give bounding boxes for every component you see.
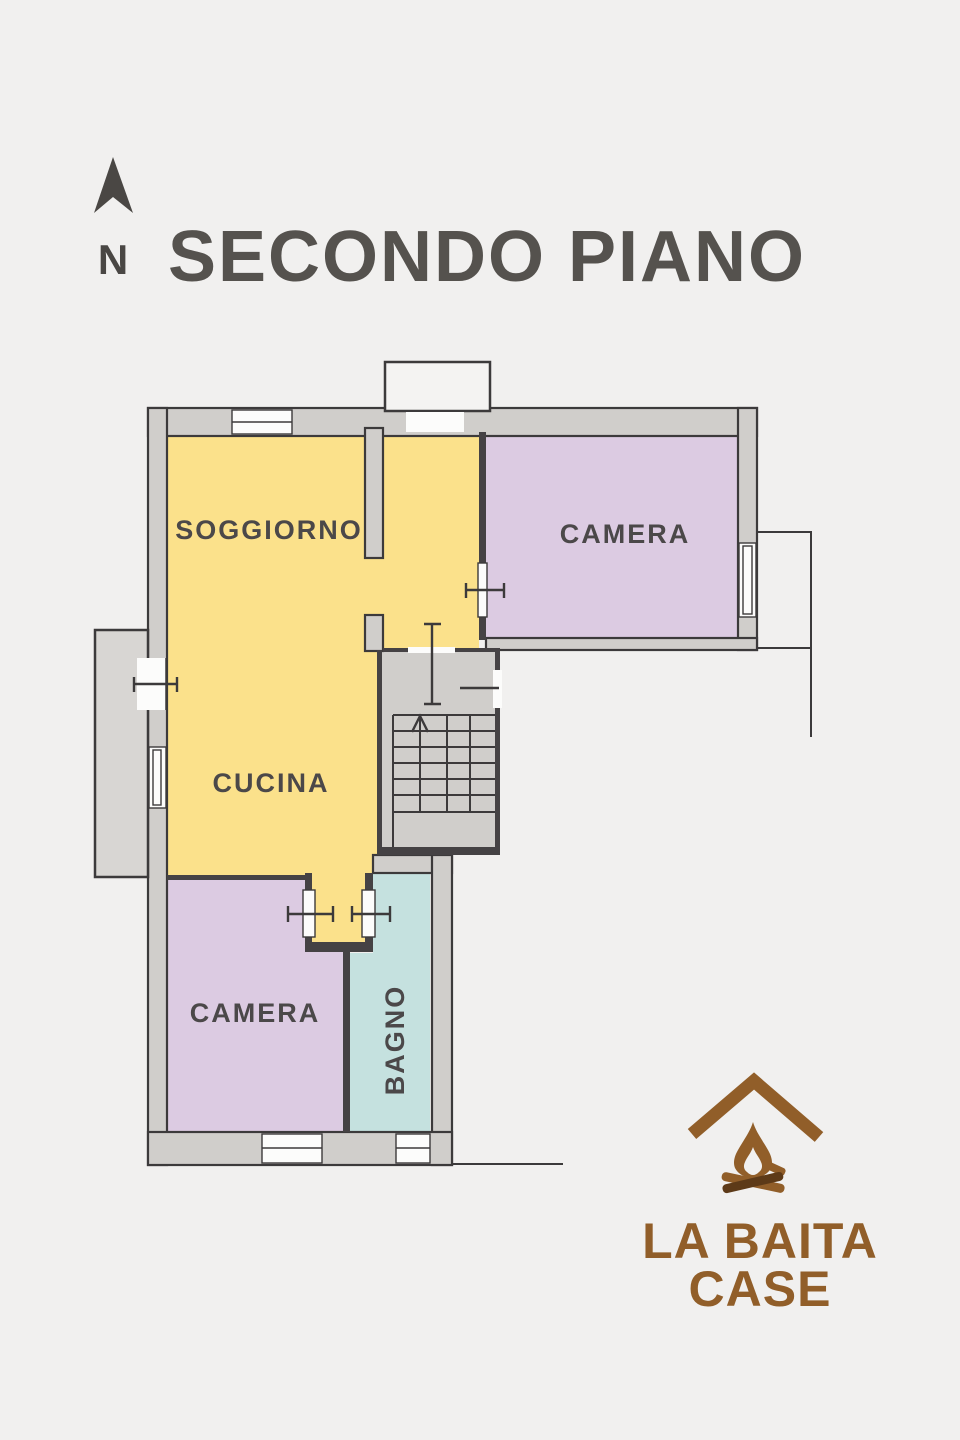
door-balcony-top <box>406 412 464 432</box>
window-right <box>739 543 756 617</box>
wall-partition-stub-2 <box>365 615 383 651</box>
wall-landing-right-a <box>495 650 500 670</box>
north-label: N <box>98 236 128 283</box>
room-fill-corridor <box>383 432 479 650</box>
north-arrow-icon <box>94 157 133 213</box>
wall-passage-bottom <box>305 942 373 952</box>
balcony-right-outline <box>757 532 811 648</box>
room-label-cucina: CUCINA <box>213 768 330 798</box>
floor-plan-canvas: N SECONDO PIANO <box>0 0 960 1440</box>
room-fill-opening <box>365 558 383 615</box>
logo-text-line2: CASE <box>689 1261 832 1317</box>
balcony-right <box>757 532 811 737</box>
wall-camera-bagno <box>343 952 350 1132</box>
wall-stair-bottom <box>377 847 500 855</box>
wall-cucina-camera <box>167 875 307 880</box>
wall-right-south <box>432 855 452 1165</box>
window-left <box>149 747 166 808</box>
stair-hall <box>382 650 497 849</box>
room-fill <box>167 434 377 875</box>
balcony-top <box>385 362 490 411</box>
north-indicator: N <box>94 157 133 283</box>
wall-cucina-stair <box>377 650 382 847</box>
page-title: SECONDO PIANO <box>168 217 806 297</box>
room-label-soggiorno: SOGGIORNO <box>175 515 363 545</box>
wall-partition-stub-1 <box>365 428 383 558</box>
agency-logo: LA BAITA CASE <box>642 1081 878 1317</box>
room-label-camera-nord: CAMERA <box>560 519 691 549</box>
room-label-camera-sud: CAMERA <box>190 998 321 1028</box>
wall-landing-right-b <box>495 708 500 850</box>
wall-bottom-north-wing <box>486 638 757 650</box>
wall-passage-right-a <box>365 873 373 890</box>
room-label-bagno: BAGNO <box>380 985 410 1096</box>
